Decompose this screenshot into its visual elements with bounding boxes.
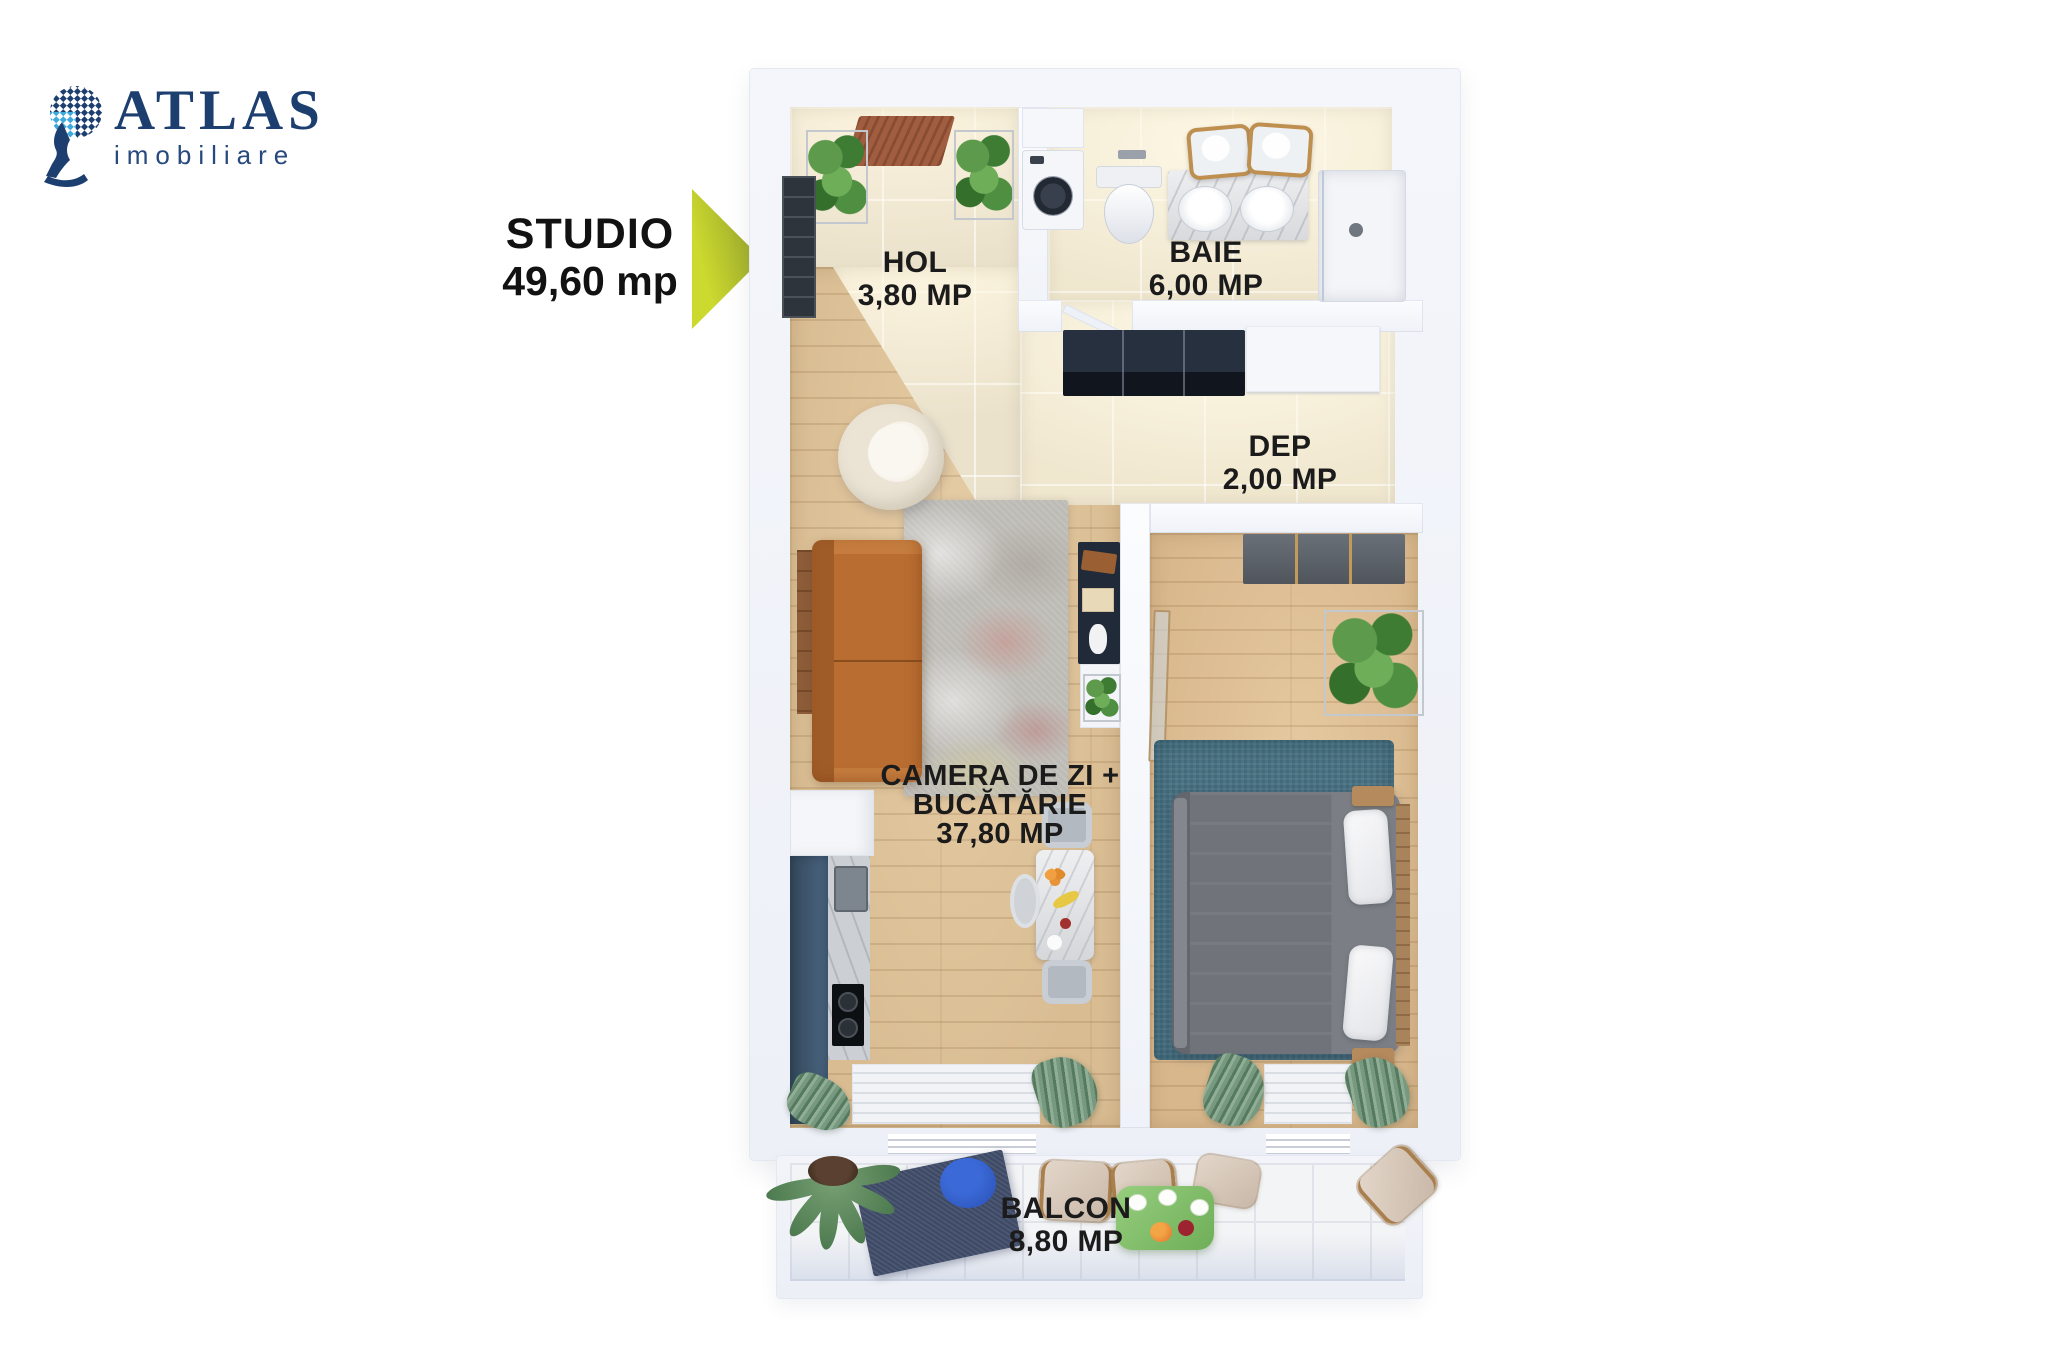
kitchen-wall-cabinets bbox=[1063, 330, 1245, 396]
plate bbox=[1046, 934, 1063, 951]
burner bbox=[838, 992, 858, 1012]
wall-living-bedroom bbox=[1120, 503, 1150, 1128]
living-window-sill bbox=[852, 1064, 1040, 1124]
unit-callout: STUDIO 49,60 mp bbox=[498, 210, 682, 304]
kitchen-sink bbox=[834, 866, 868, 912]
burner bbox=[838, 1018, 858, 1038]
brand-name: ATLAS bbox=[114, 84, 325, 138]
storage-cabinet bbox=[1246, 326, 1380, 392]
room-name: BUCĂTĂRIE bbox=[881, 791, 1120, 820]
brand-tagline: imobiliare bbox=[114, 140, 325, 170]
plate bbox=[1190, 1199, 1209, 1216]
sink-right bbox=[1240, 186, 1294, 232]
dining-chair-left bbox=[1010, 874, 1040, 928]
console-cabinet bbox=[1080, 664, 1120, 728]
sink-left bbox=[1178, 186, 1232, 232]
room-name: HOL bbox=[858, 246, 973, 279]
decor-flowers bbox=[1060, 918, 1071, 929]
atlas-globe-icon bbox=[40, 84, 104, 188]
flush-plate bbox=[1118, 150, 1146, 159]
room-area: 6,00 MP bbox=[1149, 269, 1264, 302]
room-name: CAMERA DE ZI + bbox=[881, 762, 1120, 791]
plate bbox=[1158, 1189, 1177, 1206]
bathroom-shelf bbox=[1022, 108, 1084, 148]
washing-machine bbox=[1022, 150, 1084, 230]
decor-figurine bbox=[1089, 624, 1107, 654]
mirror-left bbox=[1186, 123, 1254, 180]
decor-books bbox=[1082, 588, 1114, 612]
wardrobe bbox=[1243, 534, 1405, 584]
room-name: BALCON bbox=[1001, 1192, 1132, 1225]
pillow bbox=[1342, 944, 1394, 1041]
room-name: BAIE bbox=[1149, 236, 1264, 269]
shower-cabin bbox=[1318, 170, 1406, 302]
bed-headboard bbox=[1396, 804, 1410, 1046]
room-label-baie: BAIE 6,00 MP bbox=[1149, 236, 1264, 302]
unit-area-label: 49,60 mp bbox=[498, 258, 682, 304]
wall-bedroom-top bbox=[1150, 503, 1423, 533]
living-room-rug bbox=[904, 500, 1068, 796]
room-area: 3,80 MP bbox=[858, 279, 973, 312]
food-bowl bbox=[1178, 1220, 1194, 1236]
pillow bbox=[1343, 809, 1393, 906]
plant-pot bbox=[808, 1156, 858, 1186]
console-plant bbox=[1083, 674, 1121, 722]
dining-table bbox=[1036, 850, 1094, 960]
entrance-door bbox=[782, 176, 816, 318]
bedroom-window-sill bbox=[1264, 1064, 1352, 1124]
dining-chair-bottom bbox=[1042, 960, 1092, 1004]
palm-plant bbox=[780, 1150, 900, 1280]
room-name: DEP bbox=[1223, 430, 1338, 463]
fridge-cabinet bbox=[790, 790, 874, 856]
room-area: 2,00 MP bbox=[1223, 463, 1338, 496]
decor-board bbox=[1081, 550, 1117, 575]
nightstand bbox=[1352, 786, 1394, 806]
cooktop bbox=[832, 984, 864, 1046]
balcony-pouf bbox=[940, 1158, 996, 1208]
wall-bathroom-bottom-left bbox=[1018, 300, 1062, 332]
brand-logo: ATLAS imobiliare bbox=[40, 84, 325, 188]
room-area: 8,80 MP bbox=[1001, 1225, 1132, 1258]
living-window bbox=[888, 1134, 1036, 1154]
food-bowl bbox=[1150, 1222, 1172, 1242]
room-label-hol: HOL 3,80 MP bbox=[858, 246, 973, 312]
bed-footboard bbox=[1174, 798, 1187, 1048]
sofa bbox=[812, 540, 922, 782]
room-area: 37,80 MP bbox=[881, 820, 1120, 849]
mirror-right bbox=[1246, 122, 1313, 178]
plant-stand-right bbox=[954, 130, 1014, 220]
bedroom-window bbox=[1266, 1134, 1350, 1154]
brand-text: ATLAS imobiliare bbox=[114, 84, 325, 170]
fruit-oranges bbox=[1044, 868, 1066, 886]
bedroom-plant bbox=[1324, 610, 1424, 716]
tv-console bbox=[1078, 542, 1120, 664]
room-label-living: CAMERA DE ZI + BUCĂTĂRIE 37,80 MP bbox=[881, 762, 1120, 849]
room-label-balcon: BALCON 8,80 MP bbox=[1001, 1192, 1132, 1258]
room-label-dep: DEP 2,00 MP bbox=[1223, 430, 1338, 496]
fruit-bananas bbox=[1051, 888, 1081, 911]
floorplan-page: ATLAS imobiliare STUDIO 49,60 mp bbox=[0, 0, 2048, 1365]
armchair bbox=[838, 404, 944, 510]
unit-type-label: STUDIO bbox=[498, 210, 682, 258]
